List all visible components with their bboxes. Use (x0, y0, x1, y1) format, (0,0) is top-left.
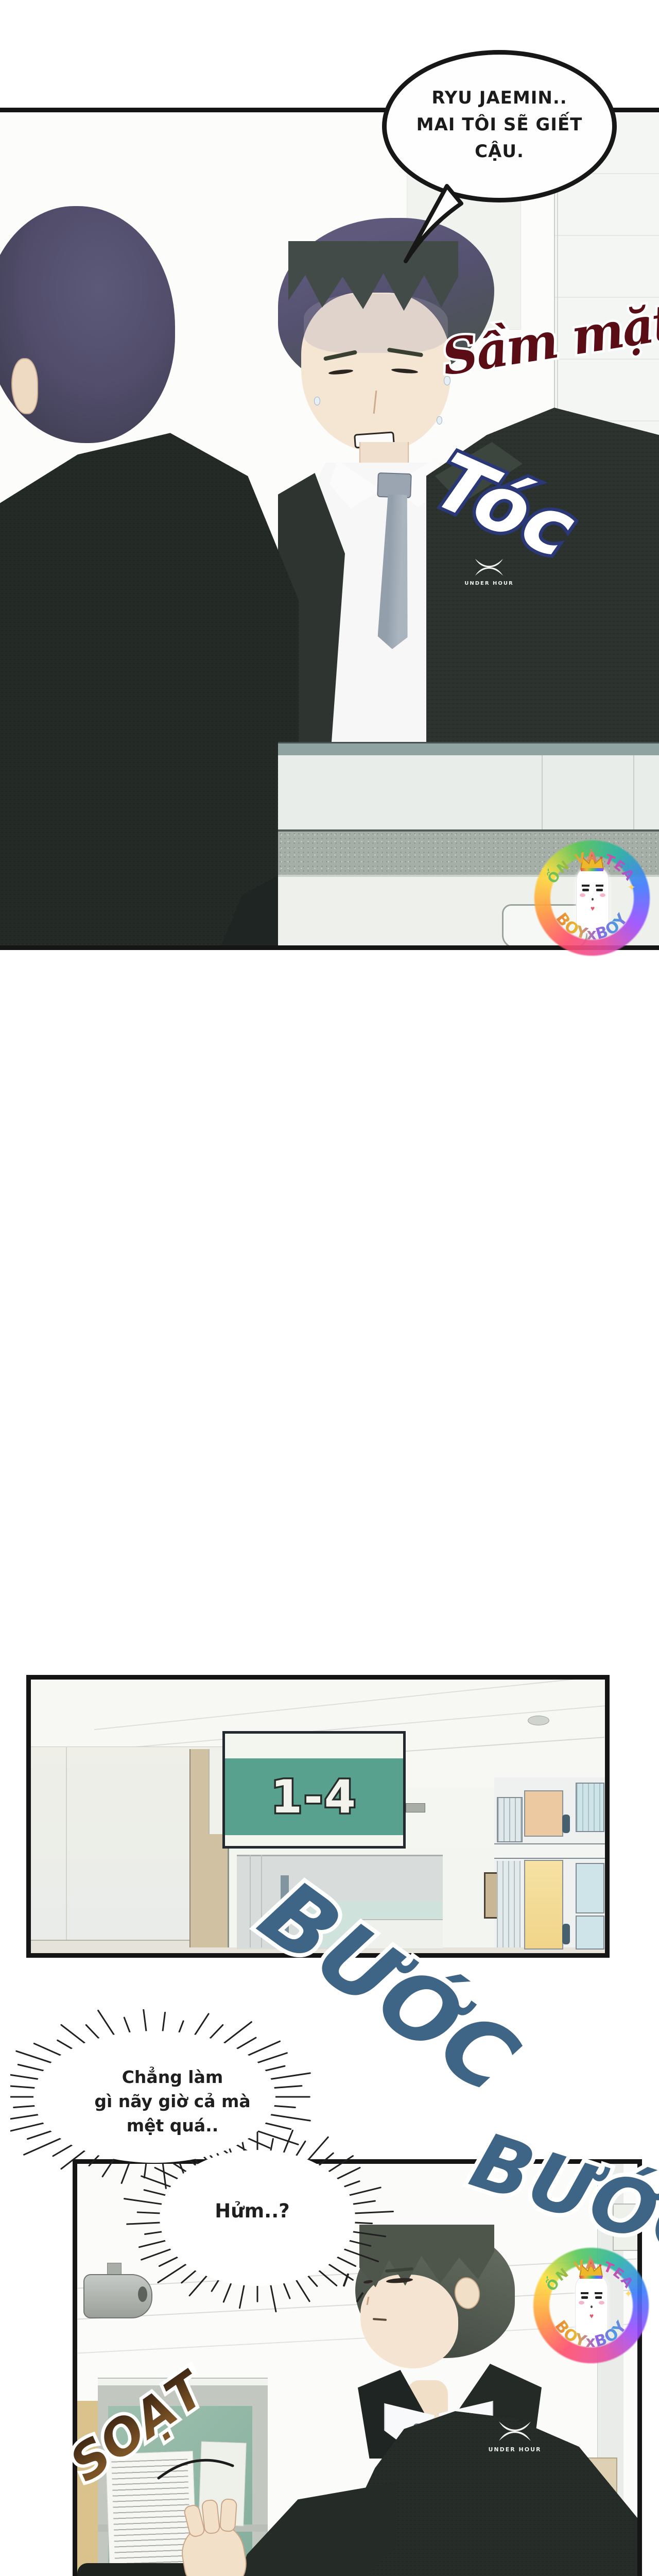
slat-window (497, 1797, 523, 1842)
cyan-window (576, 1863, 604, 1913)
tile-grout (542, 755, 543, 829)
sweat-drop (314, 397, 320, 405)
thought-line-2: gì nãy giờ cả mà (85, 2089, 260, 2113)
back-man-jacket (0, 406, 299, 945)
scanlation-watermark: ✦ ♥ VỐN VÀ TEAM BOYxBOY (532, 2246, 650, 2365)
svg-text:BOYxBOY: BOYxBOY (552, 910, 632, 944)
speech-line-2: MAI TÔI SẼ GIẾT (417, 111, 583, 138)
thought-bubble-text: Chẳng làm gì nãy giờ cả mà mệt quá.. (85, 2065, 260, 2138)
tile-grout (633, 755, 634, 829)
watermark-arc-bottom: BOYxBOY (551, 2317, 631, 2351)
lower-tile-wall (278, 755, 659, 829)
thought-burst (10, 2009, 443, 2370)
mirror-bottom-frame (278, 742, 659, 757)
underhour-logo-icon (474, 556, 504, 578)
slat-window (576, 1783, 604, 1832)
class-sign: 1-4 1-4 (222, 1731, 406, 1849)
underhour-logo-icon (498, 2419, 532, 2444)
underhour-logo-text: UNDER HOUR (461, 581, 517, 586)
reflection-tie-knot (377, 472, 412, 498)
door-latch-icon (562, 1924, 570, 1944)
speech-bubble: RYU JAEMIN.. MAI TÔI SẼ GIẾT CẬU. (382, 50, 617, 202)
sparkle-icon: ✦ (624, 2287, 633, 2300)
sweat-drop (437, 416, 442, 425)
scanlation-watermark: ✦ ♥ VỐN VÀ (533, 839, 651, 957)
window-rail (494, 1843, 605, 1859)
thought-line-3: mệt quá.. (85, 2113, 260, 2138)
hum-text: Hửm..? (206, 2200, 299, 2222)
speech-bubble-tail (396, 183, 474, 268)
class-sign-teal-band: 1-4 1-4 (225, 1758, 403, 1835)
transom-orange-glass (524, 1790, 563, 1837)
cyan-window (576, 1916, 604, 1950)
watermark-arc-bottom: BOYxBOY (552, 910, 632, 944)
hand-finger (219, 2498, 237, 2532)
soat-swoosh-icon (154, 2448, 237, 2484)
speech-line-1: RYU JAEMIN.. (431, 84, 567, 111)
underhour-logo: UNDER HOUR (461, 556, 517, 586)
underhour-logo: UNDER HOUR (484, 2419, 546, 2453)
sparkle-icon: ✦ (627, 881, 636, 894)
speech-bubble-text: RYU JAEMIN.. MAI TÔI SẼ GIẾT CẬU. (397, 60, 601, 189)
yellow-door-glass (524, 1860, 563, 1950)
thought-line-1: Chẳng làm (85, 2065, 260, 2089)
underhour-logo-text: UNDER HOUR (484, 2446, 546, 2453)
door-latch-icon (562, 1815, 570, 1833)
ceiling-lamp-icon (528, 1716, 549, 1725)
svg-text:BOYxBOY: BOYxBOY (551, 2317, 631, 2351)
wall-seam (66, 1747, 67, 1942)
speech-line-3: CẬU. (475, 138, 524, 165)
slat-window (497, 1861, 521, 1947)
sign-bracket (406, 1803, 425, 1812)
class-sign-number: 1-4 (225, 1758, 403, 1835)
